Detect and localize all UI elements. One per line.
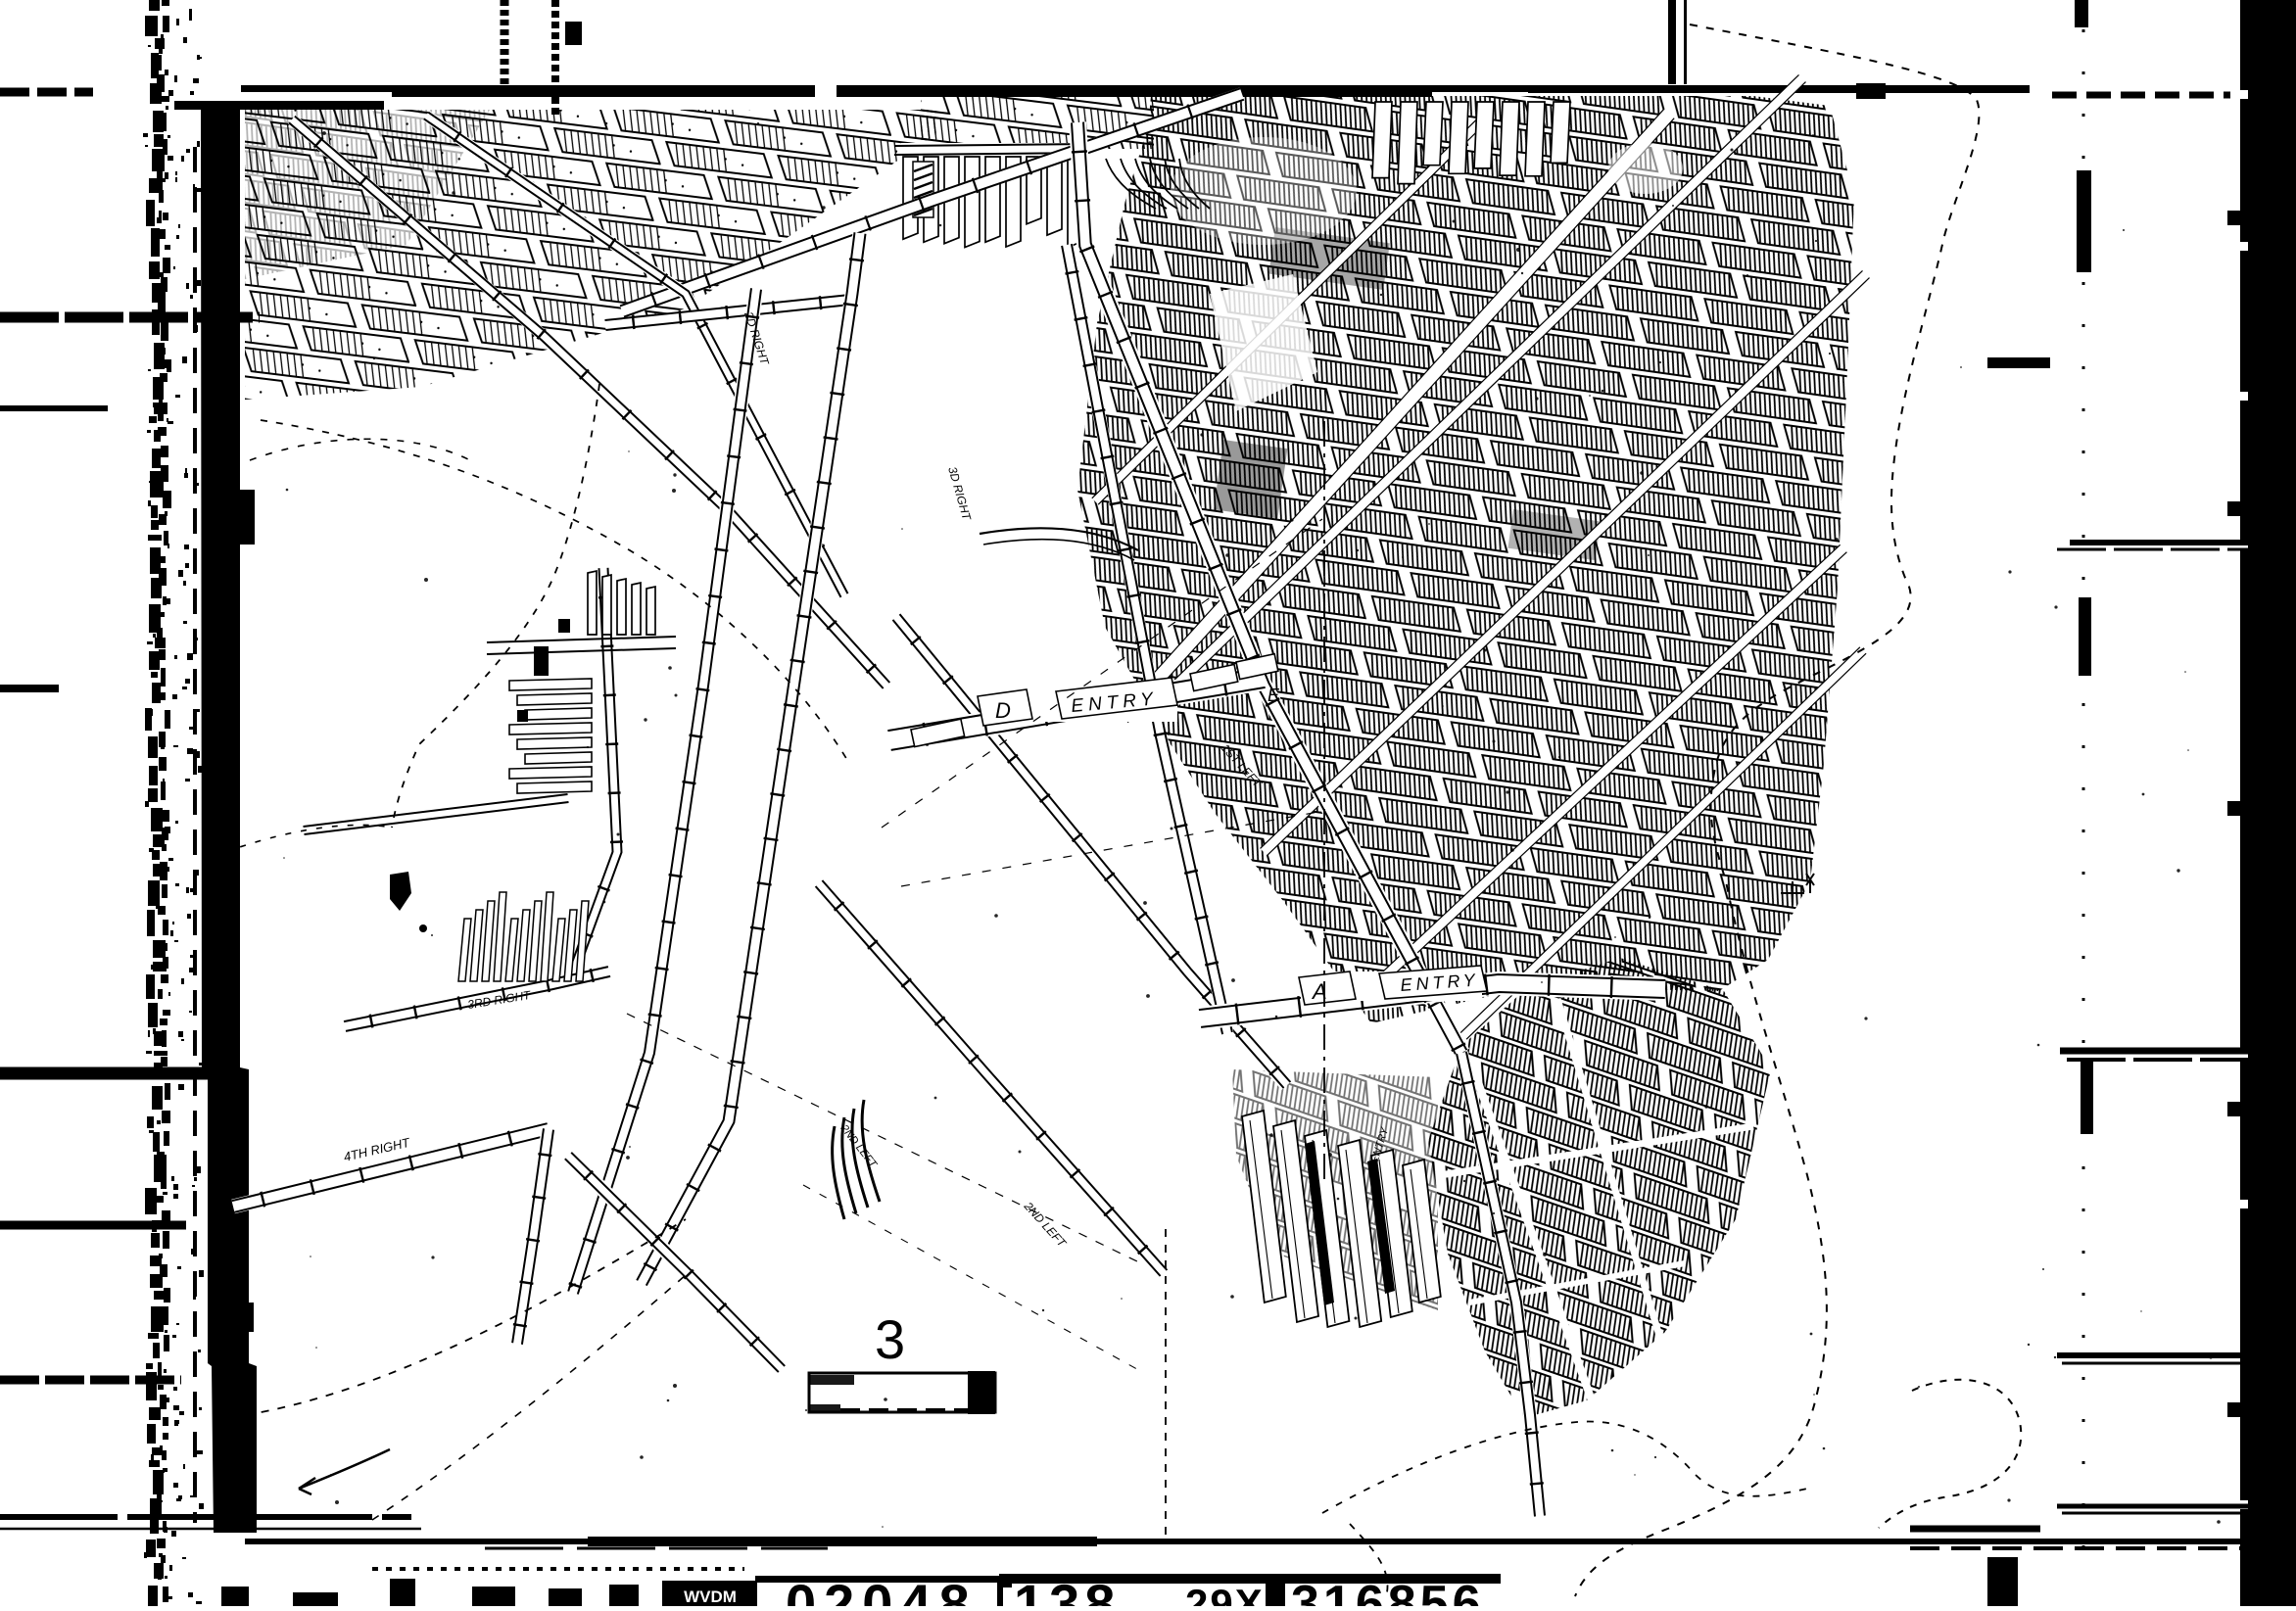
svg-text:WVDM: WVDM [684, 1587, 737, 1606]
svg-text:138: 138 [1014, 1573, 1120, 1606]
svg-text:316856: 316856 [1291, 1576, 1485, 1606]
svg-text:3: 3 [875, 1308, 905, 1370]
svg-text:D: D [995, 698, 1011, 723]
svg-text:29X: 29X [1185, 1581, 1265, 1606]
svg-text:E: E [1268, 686, 1280, 705]
svg-text:02048: 02048 [786, 1573, 978, 1606]
